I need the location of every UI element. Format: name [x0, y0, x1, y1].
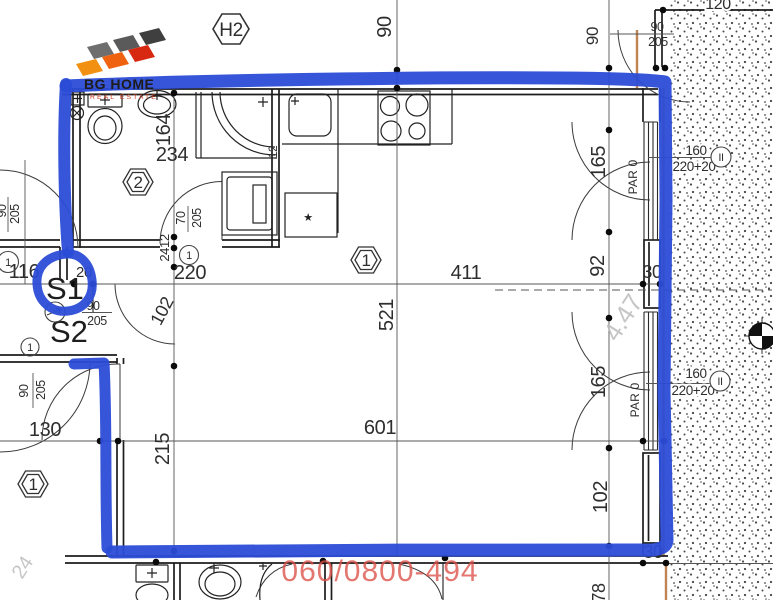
dim-165a: 165 [588, 146, 610, 178]
door-205: 205 [648, 35, 668, 49]
phone-watermark: 060/0800-494 [281, 555, 478, 588]
s1-door-205: 205 [87, 314, 107, 328]
par0-a: PAR 0 [626, 159, 640, 194]
dim-234: 234 [156, 144, 188, 166]
ldoor-205: 205 [8, 204, 22, 224]
window-type-tag-b: II [717, 376, 723, 388]
unit-s1-label: S1 [46, 271, 84, 306]
circle-tag-mid: 1 [186, 250, 192, 262]
door-90: 90 [650, 20, 664, 34]
circle-tag-left: 1 [5, 257, 11, 269]
dim-165b: 165 [588, 366, 610, 398]
logo-tagline: REAL ESTATE [90, 94, 158, 101]
floorplan-screenshot: ★ [0, 0, 773, 600]
dim-601: 601 [364, 417, 396, 439]
unit-s2-label: S2 [50, 314, 88, 349]
dim-78: 78 [589, 583, 609, 600]
main-room-tag: 1 [361, 251, 370, 270]
dim-220: 220 [174, 262, 206, 284]
win2-160: 160 [685, 366, 706, 381]
dim-120: 120 [705, 0, 731, 13]
circle-tag-lower: 1 [27, 342, 33, 354]
window-type-tag-a: II [718, 152, 724, 164]
dim-130: 130 [29, 419, 61, 441]
win1-160: 160 [685, 143, 706, 158]
star-symbol: ★ [303, 211, 313, 224]
dim-2412: 2412 [157, 234, 172, 261]
dim-521: 521 [376, 299, 398, 331]
dim-70-205: 205 [190, 208, 204, 228]
dim-102b: 102 [590, 481, 612, 513]
hatch-region [670, 0, 773, 600]
par0-b: PAR 0 [628, 382, 642, 417]
dim-164: 164 [153, 114, 175, 146]
dim-92: 92 [587, 255, 609, 277]
dim-70: 70 [174, 211, 188, 225]
win2-220-20: 220+20 [671, 383, 714, 398]
floor-plan-svg: ★ [0, 0, 773, 600]
dim-kitchen-90: 90 [374, 16, 396, 38]
bath-room-tag: 2 [133, 173, 142, 192]
win1-220-20: 220+20 [672, 159, 715, 174]
entry-90: 90 [17, 384, 31, 398]
block-label: H2 [219, 20, 243, 41]
marker-left-edge [64, 84, 68, 252]
logo-name: BG HOME [84, 76, 154, 92]
hall-room-tag: 1 [28, 475, 37, 494]
entry-205: 205 [34, 380, 48, 400]
dim-215: 215 [152, 433, 174, 465]
dim-tr-90: 90 [583, 27, 602, 45]
dim-12: 12 [266, 145, 280, 158]
dim-411: 411 [451, 262, 482, 284]
